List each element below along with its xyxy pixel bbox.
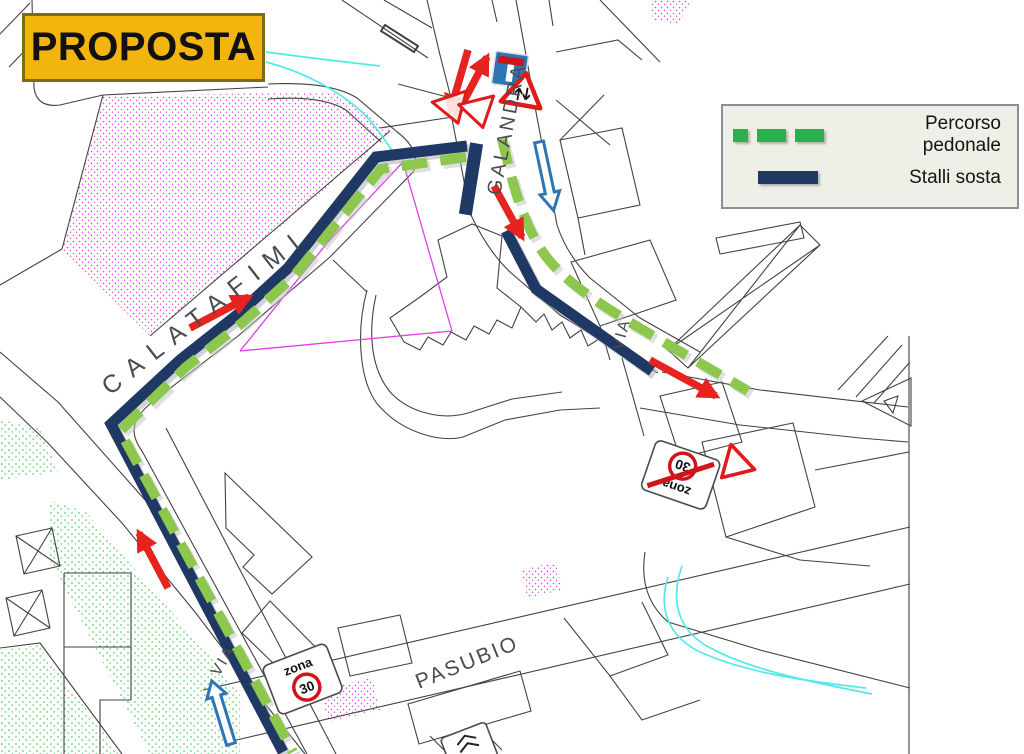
legend-box: Percorso pedonale Stalli sosta xyxy=(721,104,1019,209)
legend-label-parking: Stalli sosta xyxy=(859,167,1017,189)
street-label-via-east: VIA xyxy=(609,317,634,352)
navy-bar-icon xyxy=(758,171,818,184)
one-way-arrow-down xyxy=(529,140,563,213)
partial-sign xyxy=(440,722,499,754)
page-title: PROPOSTA xyxy=(22,13,265,82)
green-dash-icon xyxy=(733,129,748,142)
legend-label-pedestrian: Percorso pedonale xyxy=(859,113,1017,157)
legend-item-parking: Stalli sosta xyxy=(723,160,1017,196)
yield-sign xyxy=(714,440,754,477)
proposal-map-slide: zona 30 zona 30 CALATAFIMI GALANDRA VIA … xyxy=(0,0,1024,754)
legend-item-pedestrian: Percorso pedonale xyxy=(723,117,1017,153)
street-label-galandra: GALANDRA xyxy=(483,61,530,197)
green-dash-icon xyxy=(795,129,824,142)
street-label-pasubio: PASUBIO xyxy=(412,631,522,693)
pedestrian-path-swatch xyxy=(723,129,859,142)
green-dash-icon xyxy=(757,129,786,142)
page-title-text: PROPOSTA xyxy=(31,25,257,70)
parking-stalls-swatch xyxy=(723,171,859,184)
